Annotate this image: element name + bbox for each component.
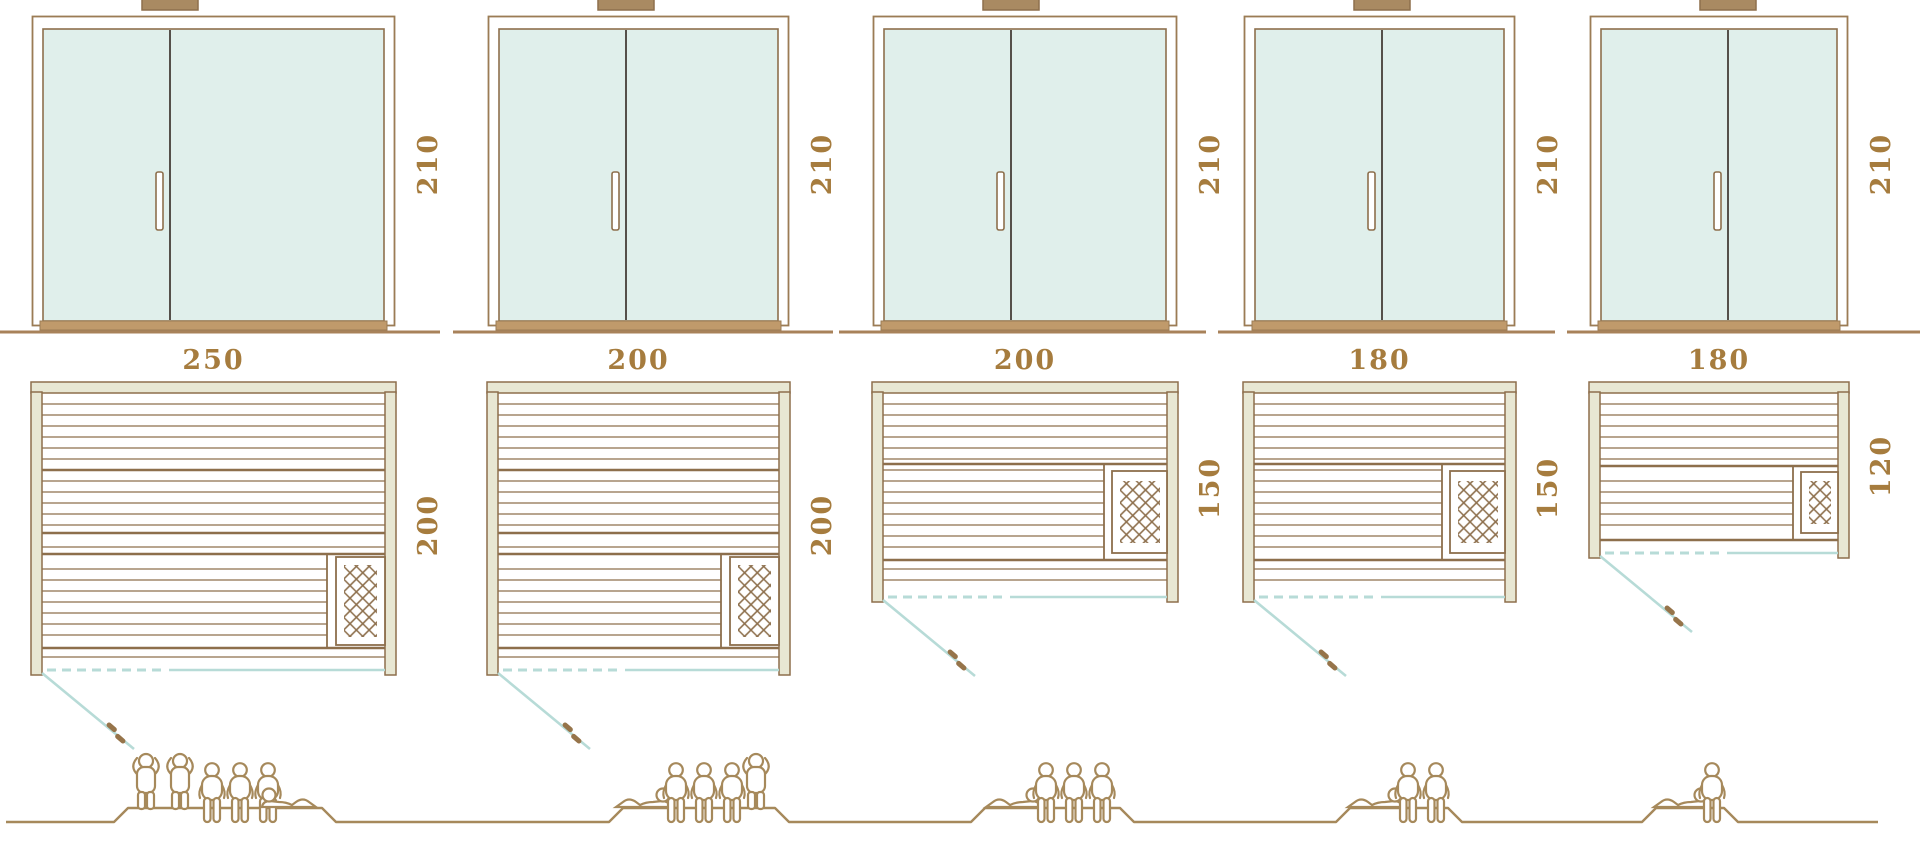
glass-door-unit: [499, 29, 778, 321]
door-elevation: [839, 0, 1206, 332]
back-wall: [31, 382, 396, 393]
sauna-size-diagram: 210 210 210 210 210 250 200 200 180 180 …: [0, 0, 1920, 856]
roof-cap: [1700, 0, 1756, 10]
right-wall: [1838, 392, 1849, 558]
sitting-person-icon: [1033, 763, 1058, 822]
sitting-person-icon: [199, 763, 224, 822]
door-handle-icon: [156, 172, 163, 230]
floor-plan: [31, 382, 396, 749]
left-wall: [487, 392, 498, 675]
roof-cap: [1354, 0, 1410, 10]
floor-plan: [1243, 382, 1516, 676]
capacity-group: [616, 754, 769, 822]
right-wall: [779, 392, 790, 675]
height-dimension-label: 210: [1532, 104, 1566, 224]
left-wall: [1243, 392, 1254, 602]
door-elevation: [453, 0, 833, 332]
glass-door-unit: [884, 29, 1166, 321]
back-wall: [1243, 382, 1516, 393]
width-dimension-label: 250: [31, 344, 396, 378]
sitting-person-icon: [663, 763, 688, 822]
width-dimension-label: 180: [1243, 344, 1516, 378]
diagram-canvas: [0, 0, 1920, 856]
standing-person-icon: [743, 754, 769, 809]
sitting-person-icon: [1395, 763, 1420, 822]
floor-plan: [1589, 382, 1849, 632]
lying-person-icon: [986, 789, 1040, 808]
back-wall: [487, 382, 790, 393]
right-wall: [385, 392, 396, 675]
height-dimension-label: 210: [412, 104, 446, 224]
left-wall: [872, 392, 883, 602]
left-wall: [1589, 392, 1600, 558]
depth-dimension-label: 200: [806, 465, 840, 585]
heater-crosshatch-icon: [1120, 481, 1160, 543]
floor-plan: [872, 382, 1178, 676]
sitting-person-icon: [1089, 763, 1114, 822]
depth-dimension-label: 200: [412, 465, 446, 585]
capacity-strip: [6, 754, 1878, 822]
standing-person-icon: [167, 754, 193, 809]
wood-planks: [42, 404, 385, 657]
width-dimension-label: 180: [1589, 344, 1849, 378]
door-handle-icon: [612, 172, 619, 230]
height-dimension-label: 210: [1194, 104, 1228, 224]
height-dimension-label: 210: [806, 104, 840, 224]
heater-crosshatch-icon: [1809, 481, 1831, 524]
sitting-person-icon: [691, 763, 716, 822]
back-wall: [872, 382, 1178, 393]
roof-cap: [983, 0, 1039, 10]
sitting-person-icon: [1061, 763, 1086, 822]
left-wall: [31, 392, 42, 675]
door-handle-icon: [997, 172, 1004, 230]
door-sill: [496, 321, 781, 330]
right-wall: [1167, 392, 1178, 602]
door-handle-icon: [1714, 172, 1721, 230]
floor-plan: [487, 382, 790, 749]
lying-person-icon: [1348, 789, 1402, 808]
door-sill: [40, 321, 387, 330]
capacity-group: [986, 763, 1115, 822]
roof-cap: [598, 0, 654, 10]
height-dimension-label: 210: [1865, 104, 1899, 224]
depth-dimension-label: 150: [1532, 428, 1566, 548]
sitting-person-icon: [719, 763, 744, 822]
roof-cap: [142, 0, 198, 10]
depth-dimension-label: 120: [1865, 406, 1899, 526]
back-wall: [1589, 382, 1849, 393]
lying-person-icon: [262, 789, 316, 808]
heater-crosshatch-icon: [1458, 481, 1498, 543]
standing-person-icon: [133, 754, 159, 809]
glass-door-unit: [1255, 29, 1504, 321]
door-sill: [1598, 321, 1840, 330]
right-wall: [1505, 392, 1516, 602]
sitting-person-icon: [227, 763, 252, 822]
door-elevation: [0, 0, 440, 332]
depth-dimension-label: 150: [1194, 428, 1228, 548]
door-sill: [881, 321, 1169, 330]
door-sill: [1252, 321, 1507, 330]
capacity-group: [133, 754, 316, 822]
width-dimension-label: 200: [487, 344, 790, 378]
lying-person-icon: [616, 789, 670, 808]
capacity-baseline: [6, 808, 1878, 822]
sitting-person-icon: [1423, 763, 1448, 822]
door-elevation: [1218, 0, 1555, 332]
glass-door-unit: [43, 29, 384, 321]
heater-crosshatch-icon: [344, 565, 377, 637]
sitting-person-icon: [1699, 763, 1724, 822]
door-handle-icon: [1368, 172, 1375, 230]
capacity-group: [1654, 763, 1725, 822]
capacity-group: [1348, 763, 1449, 822]
heater-crosshatch-icon: [738, 565, 771, 637]
width-dimension-label: 200: [872, 344, 1178, 378]
